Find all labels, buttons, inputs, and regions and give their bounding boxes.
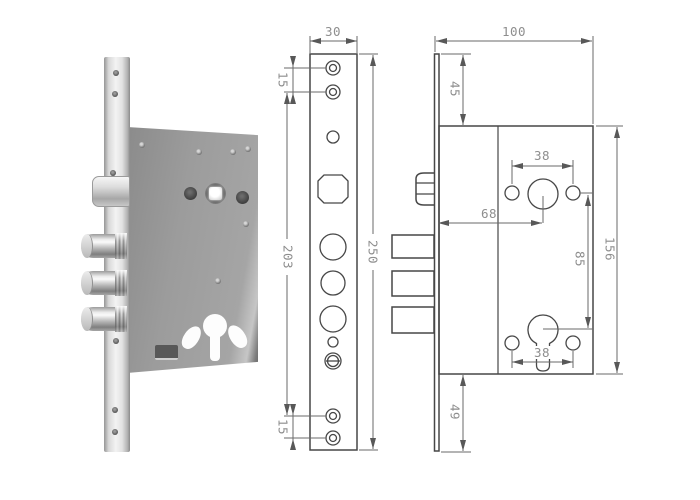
rivet xyxy=(196,149,202,155)
dim-handle-to-cylinder: 85 xyxy=(573,251,588,267)
spindle-square xyxy=(209,187,222,200)
teardrop-cutout xyxy=(178,323,204,352)
faceplate-outline xyxy=(310,54,357,450)
cylinder-screw-hole xyxy=(566,336,580,350)
small-hole xyxy=(328,337,338,347)
deadbolt-profile xyxy=(392,271,434,296)
bolt-hole xyxy=(320,306,346,332)
rivet xyxy=(230,149,236,155)
screw-hole xyxy=(326,85,340,99)
deadbolt-collar xyxy=(115,270,127,296)
lock-technical-sheet: 30 15 203 250 15 100 45 38 68 85 156 38 … xyxy=(0,0,700,500)
deadbolt-profile xyxy=(392,307,434,333)
bolt-hole xyxy=(321,271,345,295)
dim-body-depth: 100 xyxy=(502,24,526,39)
dim-cylinder-screw-spacing: 38 xyxy=(534,345,550,360)
dim-screw-hole-span: 203 xyxy=(281,245,296,269)
teardrop-cutout xyxy=(224,322,250,351)
fixing-hole xyxy=(184,187,197,200)
dim-handle-screw-spacing: 38 xyxy=(534,148,550,163)
screw-hole xyxy=(113,338,119,344)
dim-bottom-offset: 49 xyxy=(448,404,463,420)
screw-hole xyxy=(112,91,118,97)
deadbolt-profile xyxy=(392,235,434,258)
screw-hole xyxy=(113,70,119,76)
bolt-hole xyxy=(320,234,346,260)
rivet xyxy=(139,142,145,148)
dim-top-offset: 45 xyxy=(448,81,463,97)
spindle-follower xyxy=(205,183,226,204)
follower-octagon-hole xyxy=(318,175,348,203)
rivet xyxy=(215,278,221,284)
euro-cylinder-hole xyxy=(528,315,558,371)
rivet xyxy=(243,221,249,227)
dim-top-screw-spacing: 15 xyxy=(276,72,291,88)
deadbolt-collar xyxy=(115,233,127,259)
handle-screw-hole xyxy=(505,186,519,200)
fixing-hole xyxy=(236,191,249,204)
small-hole xyxy=(327,131,339,143)
dim-plate-height: 250 xyxy=(366,240,381,264)
front-view xyxy=(310,54,357,450)
screw-hole xyxy=(326,409,340,423)
screw-hole xyxy=(112,407,118,413)
deadbolt-face xyxy=(81,307,93,331)
handle-screw-hole xyxy=(566,186,580,200)
side-view xyxy=(392,54,593,451)
dim-body-height: 156 xyxy=(603,237,618,261)
deadbolt-2 xyxy=(81,270,127,296)
cylinder-slot-cutout xyxy=(210,333,220,361)
screw-hole xyxy=(112,429,118,435)
dim-bottom-screw-spacing: 15 xyxy=(276,419,291,435)
deadbolt-collar xyxy=(115,306,127,332)
latch-bolt xyxy=(92,176,130,207)
latch-profile xyxy=(416,173,435,205)
screw-hole xyxy=(326,61,340,75)
dim-plate-width: 30 xyxy=(325,24,341,39)
bottom-slot-hole xyxy=(155,345,178,360)
cylinder-screw-hole xyxy=(505,336,519,350)
deadbolt-face xyxy=(81,271,93,295)
dim-backset: 68 xyxy=(481,206,497,221)
rivet xyxy=(245,146,251,152)
lock-body xyxy=(127,127,258,373)
deadbolt-1 xyxy=(81,233,127,259)
screw-hole xyxy=(326,431,340,445)
deadbolt-3 xyxy=(81,306,127,332)
deadbolt-face xyxy=(81,234,93,258)
